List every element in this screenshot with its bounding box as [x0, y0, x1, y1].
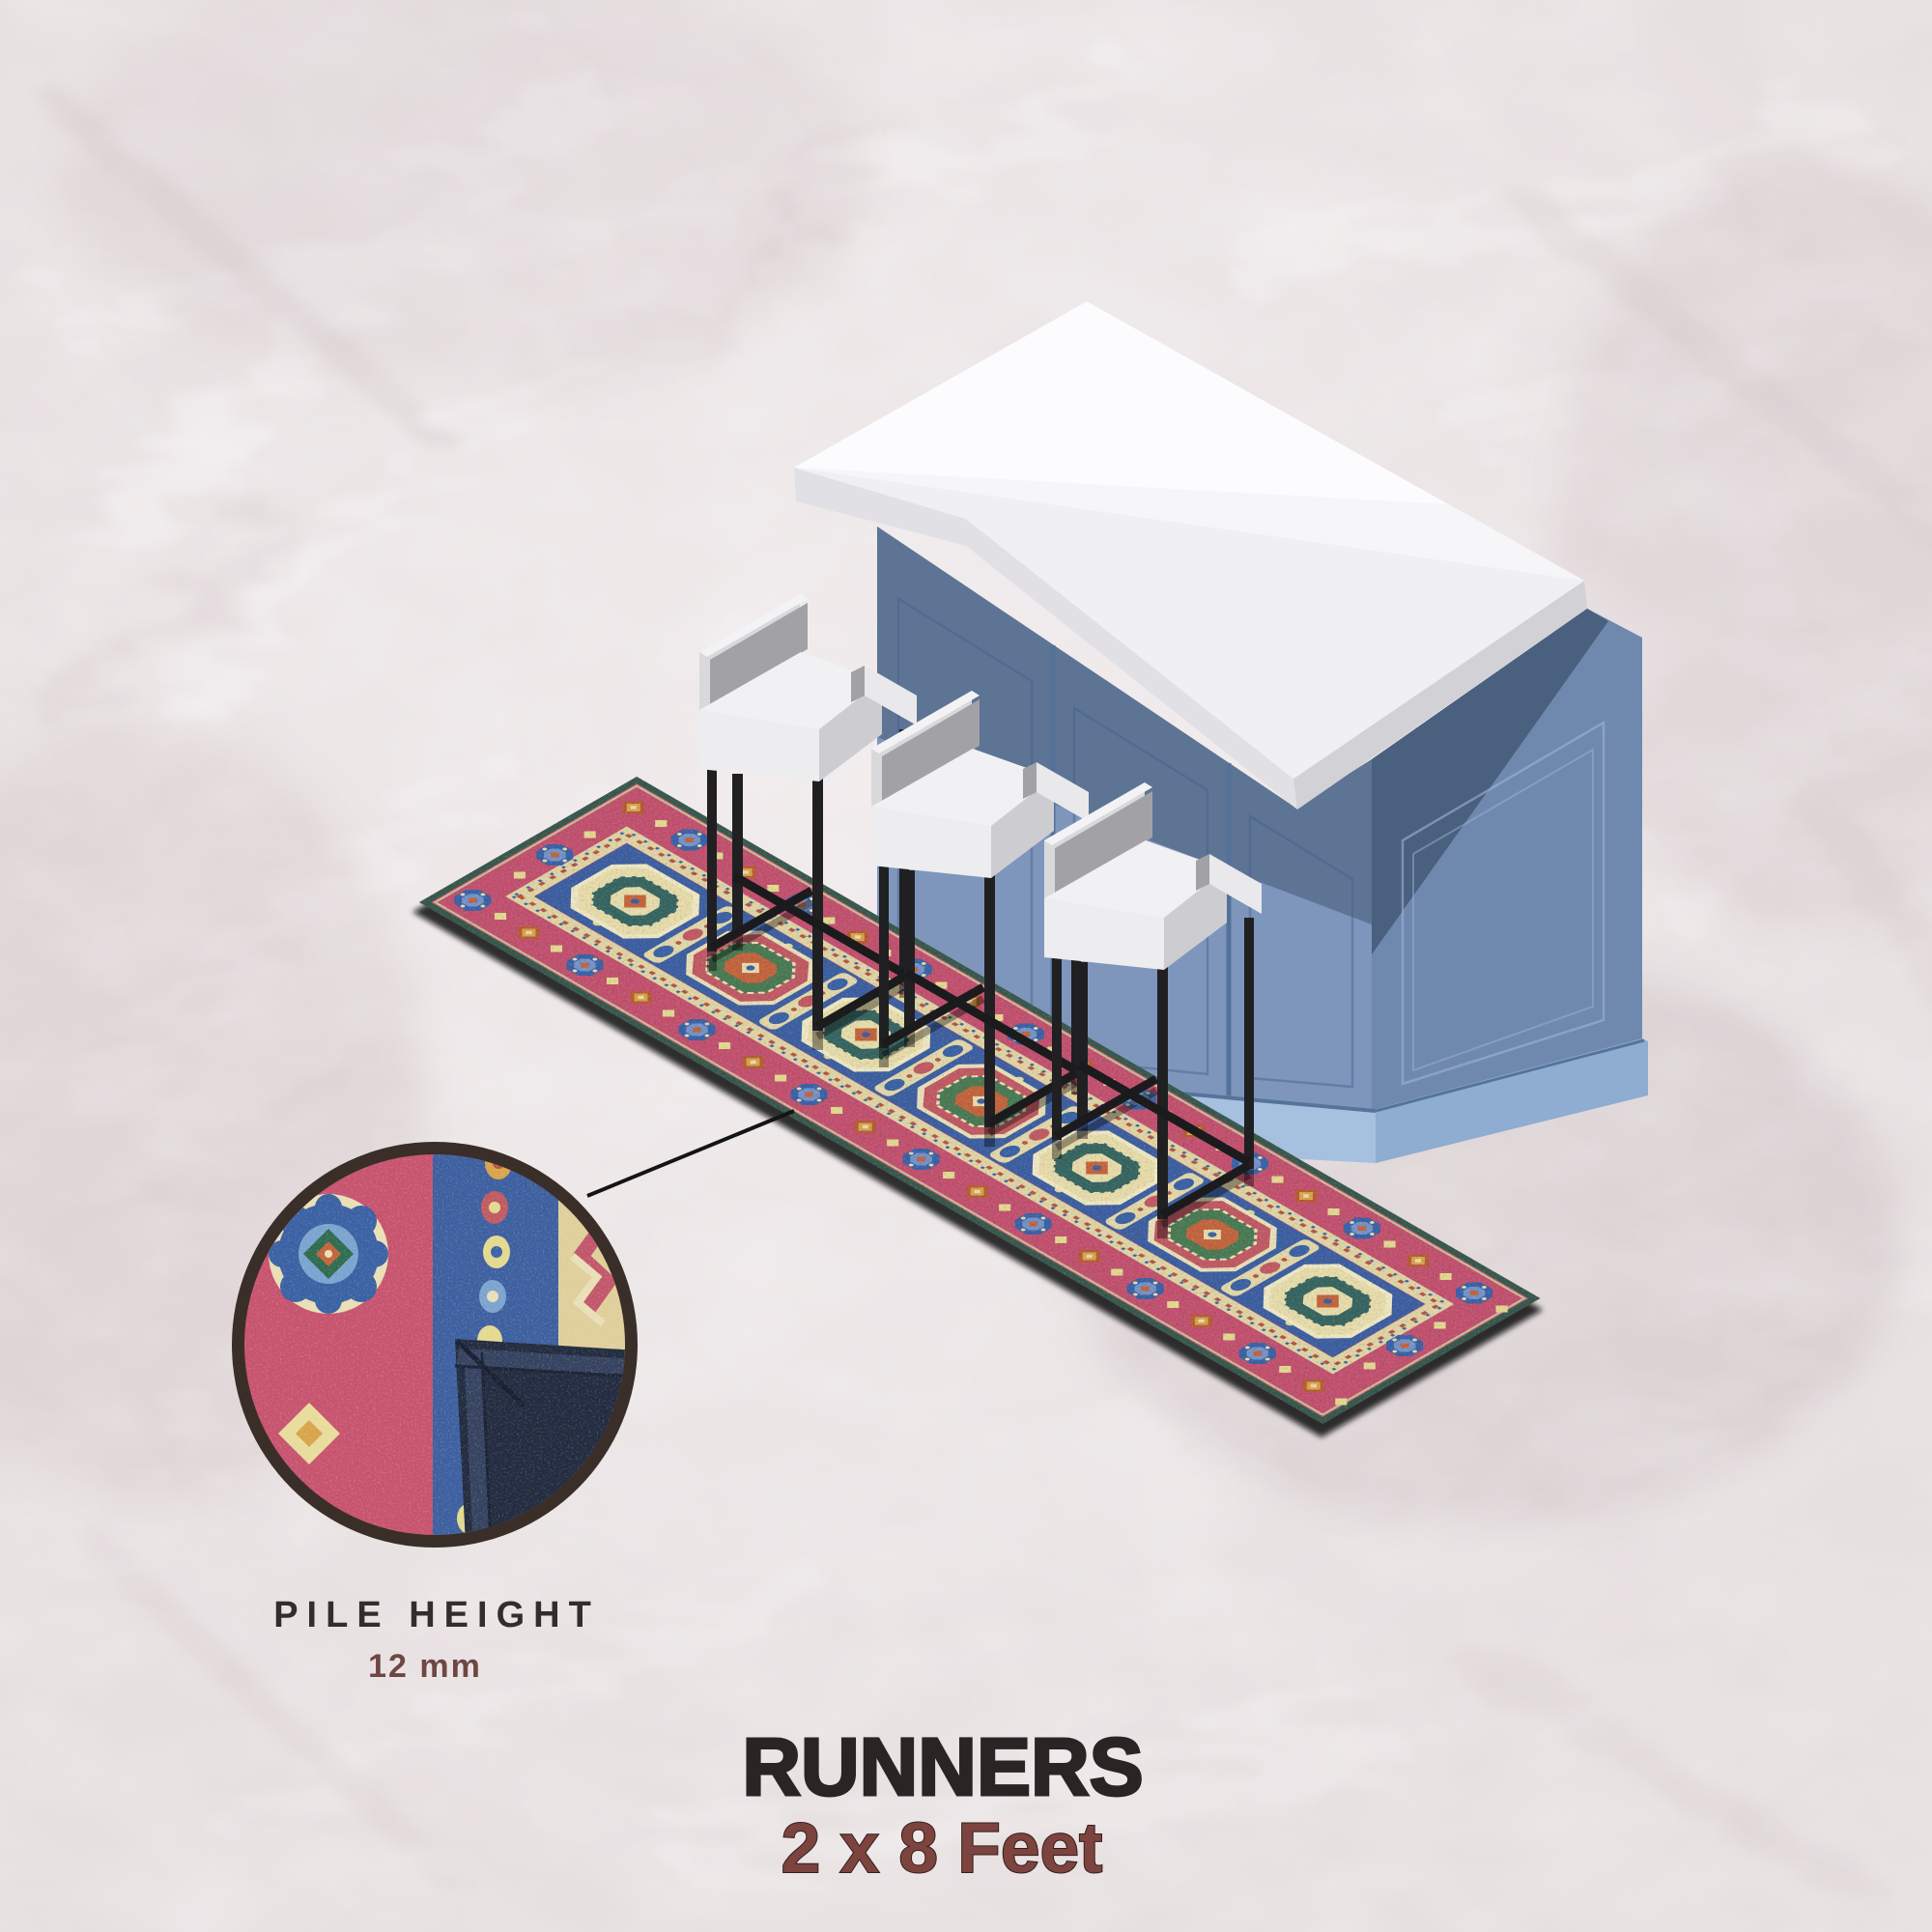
svg-text:2 x 8 Feet: 2 x 8 Feet	[781, 1809, 1103, 1888]
svg-text:12 mm: 12 mm	[368, 1648, 482, 1685]
svg-text:RUNNERS: RUNNERS	[742, 1721, 1143, 1812]
svg-text:PILE HEIGHT: PILE HEIGHT	[273, 1595, 600, 1635]
